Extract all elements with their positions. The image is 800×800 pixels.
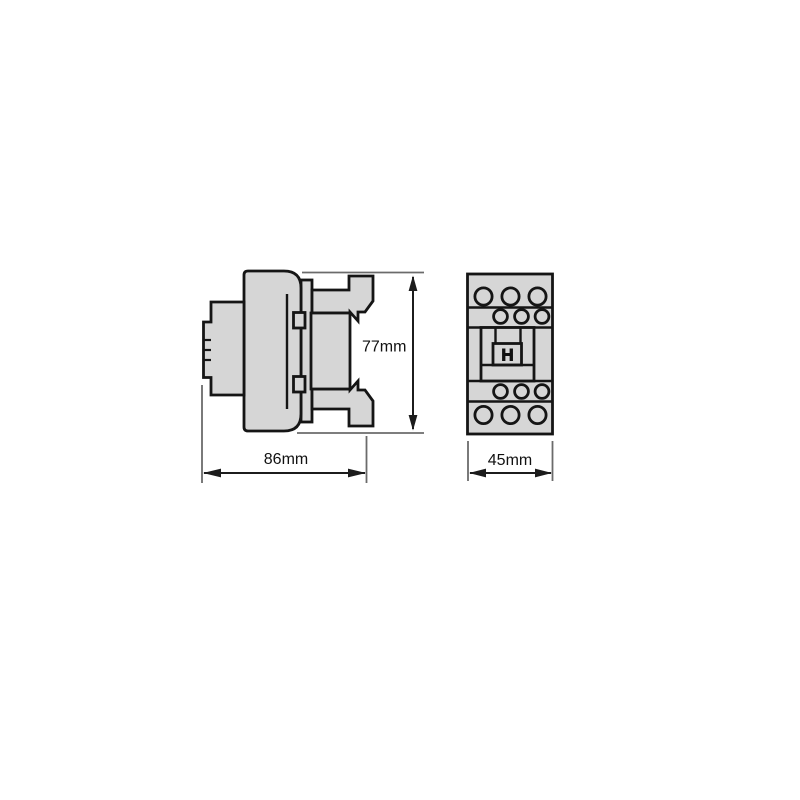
terminal-screw-small <box>494 310 508 324</box>
width-dimension-label: 86mm <box>264 451 308 468</box>
terminal-screw-large <box>529 406 546 423</box>
terminal-screw-small <box>535 310 549 324</box>
arrowhead-right <box>535 469 552 478</box>
terminal-screw-large <box>502 288 519 305</box>
terminal-screw-large <box>502 406 519 423</box>
depth-dimension: 45mm <box>468 441 553 481</box>
mounting-hole-top <box>294 313 306 329</box>
terminal-screw-large <box>529 288 546 305</box>
center-marking-label: H <box>501 346 513 365</box>
contactor-dimension-drawing: H 77mm 86mm <box>0 0 800 800</box>
terminal-screw-large <box>475 288 492 305</box>
arrowhead-left <box>469 469 486 478</box>
terminal-screw-small <box>535 385 549 399</box>
terminal-screw-small <box>515 310 529 324</box>
dimension-drawing-page: H 77mm 86mm <box>0 0 800 800</box>
mounting-hole-bottom <box>294 377 306 393</box>
terminal-screw-small <box>494 385 508 399</box>
height-dimension-label: 77mm <box>362 339 406 356</box>
side-view-rear-block <box>311 313 350 389</box>
arrowhead-up <box>409 276 418 292</box>
arrowhead-right <box>348 469 366 478</box>
front-view: H <box>468 274 553 434</box>
side-view-main-body <box>244 271 301 431</box>
arrowhead-down <box>409 415 418 431</box>
arrowhead-left <box>203 469 221 478</box>
terminal-screw-small <box>515 385 529 399</box>
depth-dimension-label: 45mm <box>488 452 532 469</box>
side-view-terminal-block <box>204 302 245 395</box>
side-view <box>204 271 374 431</box>
terminal-screw-large <box>475 406 492 423</box>
